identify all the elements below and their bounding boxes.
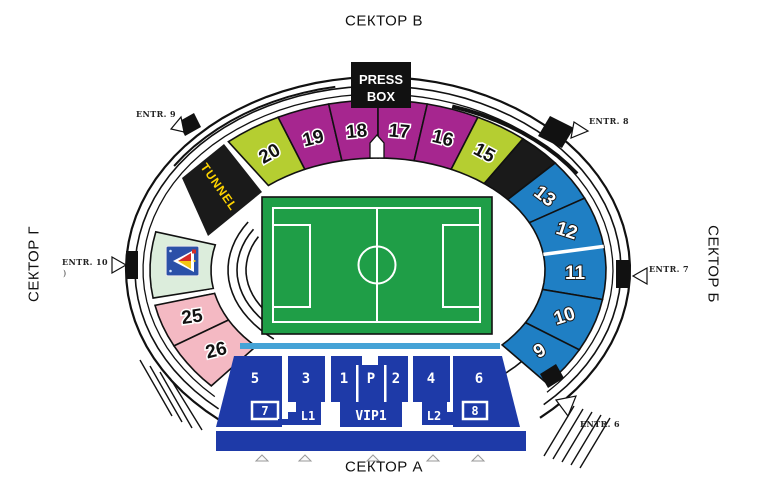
divider-1-p	[356, 365, 359, 402]
walkway-bar	[240, 343, 500, 349]
entrance-6-arrow	[556, 396, 576, 416]
sector-label-a: СЕКТОР А	[345, 459, 423, 476]
label-l2: L2	[427, 409, 441, 423]
label-2: 2	[392, 371, 400, 387]
sector-label-g: СЕКТОР Г	[26, 226, 43, 302]
entrance-10-arrow	[112, 257, 126, 273]
entrance-9-arrow	[171, 117, 184, 132]
stadium-svg: 2019181716151312111092526 TUNNEL	[0, 0, 768, 495]
ramp-hatch-right	[544, 406, 610, 468]
entrance-7-gate	[616, 260, 629, 288]
entrance-10-mark: )	[63, 269, 66, 278]
label-6: 6	[475, 371, 483, 387]
label-l1: L1	[301, 409, 315, 423]
ring-section-label-17: 17	[388, 120, 411, 143]
press-box-line1: PRESS	[359, 72, 403, 87]
sector-label-v: СЕКТОР В	[345, 13, 423, 30]
entrance-8-label: ENTR. 8	[589, 116, 629, 126]
label-1: 1	[340, 371, 348, 387]
label-4: 4	[427, 371, 435, 387]
entrance-9-label: ENTR. 9	[136, 109, 176, 119]
sector-label-b: СЕКТОР Б	[705, 225, 722, 303]
ring-section-label-25: 25	[180, 305, 204, 329]
ramp-hatch-left	[140, 360, 202, 430]
club-crest-logo	[166, 246, 199, 276]
entrance-10-label: ENTR. 10	[62, 257, 108, 267]
bottom-stand: 5 3 1 P 2 4 6 7 L1 VIP1 L2 8	[216, 356, 526, 451]
divider-p-2	[384, 365, 387, 402]
stand-top-notch	[362, 356, 378, 365]
label-p: P	[367, 371, 375, 387]
entrance-8-arrow	[571, 122, 588, 138]
entrance-7-label: ENTR. 7	[649, 264, 689, 274]
press-box-line2: BOX	[367, 89, 396, 104]
label-5: 5	[251, 371, 259, 387]
entrance-10-gate	[126, 251, 138, 279]
stadium-map: 2019181716151312111092526 TUNNEL	[0, 0, 768, 495]
entrance-7-arrow	[633, 268, 647, 284]
entrance-6-label: ENTR. 6	[580, 419, 620, 429]
ring-section-label-18: 18	[345, 120, 368, 143]
stand-lower-tier[interactable]	[216, 431, 526, 451]
press-box: PRESS BOX	[351, 62, 411, 108]
label-3: 3	[302, 371, 310, 387]
ring-section-label-11: 11	[565, 263, 586, 284]
label-vip1: VIP1	[355, 409, 386, 424]
label-7: 7	[261, 404, 268, 418]
football-pitch	[262, 197, 492, 334]
label-8: 8	[471, 404, 478, 418]
